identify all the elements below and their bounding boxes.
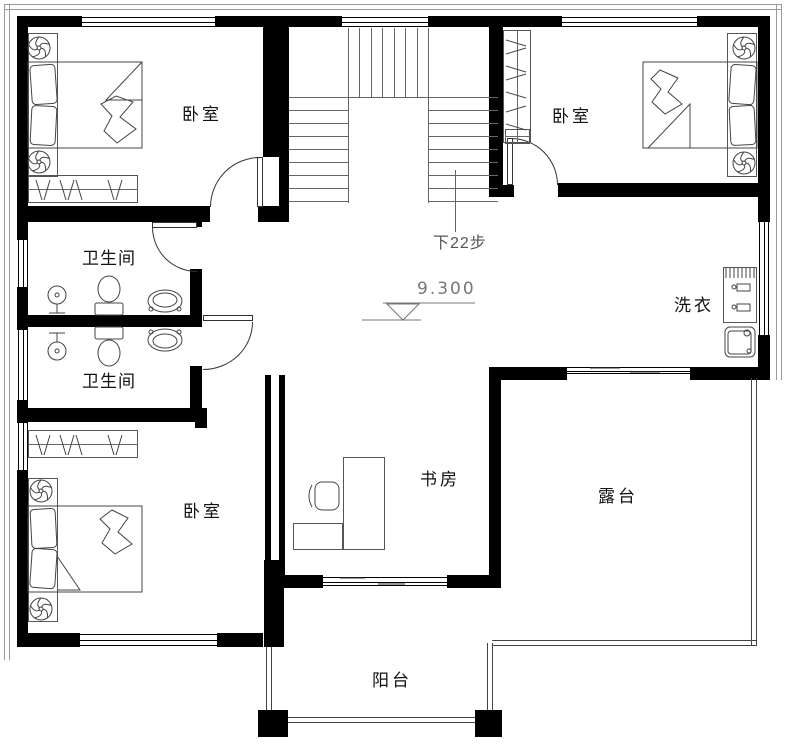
wardrobe-rail — [28, 189, 138, 190]
stair-tread — [428, 110, 498, 111]
stairs-annotation: 下22步 — [433, 236, 487, 252]
stair-tread — [289, 136, 348, 137]
stair-tread — [428, 201, 498, 202]
wall — [558, 183, 770, 197]
eave-line — [5, 4, 782, 5]
sliding-door — [323, 577, 447, 586]
stair-tread — [289, 162, 348, 163]
room-label-bathroom-lower: 卫生间 — [82, 373, 136, 390]
stair-tread — [289, 123, 348, 124]
balcony-railing — [266, 647, 267, 710]
stair-tread — [428, 149, 498, 150]
balcony-column — [258, 710, 288, 737]
wall — [195, 408, 207, 428]
wall — [190, 269, 202, 323]
stair-tread — [359, 28, 360, 97]
stair-tread — [428, 28, 429, 97]
window — [18, 240, 28, 287]
floor-plan: 卧室 卧室 卧室 卫生间 卫生间 洗衣 书房 露台 阳台 下22步 9.300 — [0, 0, 789, 755]
room-label-bedroom-top-left: 卧室 — [182, 106, 222, 123]
stair-tread — [289, 201, 348, 202]
terrace-railing — [756, 378, 757, 645]
terrace-railing — [492, 645, 757, 646]
balcony-railing — [271, 647, 272, 710]
room-label-bedroom-top-right: 卧室 — [552, 108, 592, 125]
wall — [489, 367, 567, 380]
wall — [758, 16, 770, 222]
headboard-strip — [727, 33, 757, 177]
stair-tread — [289, 188, 348, 189]
room-label-terrace: 露台 — [598, 488, 638, 505]
wardrobe-rail — [517, 30, 518, 143]
wall — [17, 206, 210, 222]
partition-wall — [279, 375, 285, 575]
window — [562, 17, 697, 27]
stair-tread — [428, 162, 498, 163]
window — [18, 330, 28, 400]
eave-line — [9, 4, 10, 660]
stair-tread — [371, 28, 372, 97]
stair-wall — [279, 16, 289, 215]
stairs-leader-line — [455, 170, 456, 232]
window — [759, 222, 769, 335]
door-swing-arc — [511, 138, 558, 185]
balcony-column — [475, 710, 502, 737]
eave-line — [4, 4, 5, 660]
window — [82, 17, 215, 27]
desk — [343, 457, 385, 550]
stair-tread — [289, 97, 498, 98]
stair-tread — [417, 28, 418, 97]
room-label-study: 书房 — [420, 471, 460, 488]
window — [80, 634, 217, 646]
headboard-strip — [28, 33, 58, 177]
balcony-railing — [288, 722, 475, 723]
terrace-railing — [492, 640, 757, 641]
wall — [17, 315, 202, 327]
room-label-bedroom-bottom-left: 卧室 — [183, 503, 223, 520]
balcony-railing — [492, 643, 493, 710]
stair-tread — [382, 28, 383, 97]
stair-tread — [394, 28, 395, 97]
room-label-laundry: 洗衣 — [674, 297, 714, 314]
elevation-value: 9.300 — [417, 281, 476, 298]
stair-tread — [289, 149, 348, 150]
wall — [489, 367, 501, 588]
stair-tread — [348, 28, 349, 97]
balcony-railing — [288, 717, 475, 718]
door-leaf — [203, 315, 253, 321]
wall — [690, 367, 770, 380]
window — [18, 423, 28, 470]
wall — [17, 408, 207, 422]
stair-tread — [428, 175, 498, 176]
eave-line — [5, 9, 782, 10]
wardrobe-shelf-line — [505, 136, 530, 137]
room-label-balcony: 阳台 — [372, 672, 412, 689]
door-swing-arc — [210, 157, 260, 207]
wardrobe-rail — [28, 444, 138, 445]
stair-tread — [289, 175, 348, 176]
door-swing-arc — [152, 227, 197, 272]
headboard-strip — [28, 478, 58, 622]
stair-tread — [405, 28, 406, 97]
laundry-counter — [723, 267, 757, 323]
elevation-marker — [362, 303, 475, 320]
door-swing-arc — [203, 322, 253, 370]
stair-well-edge — [348, 97, 349, 203]
stair-tread — [428, 188, 498, 189]
terrace-railing — [751, 378, 752, 645]
balcony-railing — [487, 643, 488, 710]
wall — [17, 633, 80, 647]
wall — [258, 206, 289, 222]
wall — [496, 185, 514, 197]
partition-wall — [265, 375, 271, 565]
window — [342, 17, 428, 27]
stair-tread — [428, 123, 498, 124]
room-label-bathroom-upper: 卫生间 — [82, 250, 136, 267]
eave-line — [776, 4, 777, 380]
wall — [217, 633, 263, 647]
desk-return — [293, 523, 343, 550]
stair-tread — [428, 136, 498, 137]
wall — [17, 470, 28, 647]
sliding-door — [567, 367, 690, 374]
stair-tread — [289, 110, 348, 111]
eave-line — [781, 4, 782, 380]
wall — [190, 366, 202, 408]
wall — [280, 575, 323, 588]
stair-wall — [489, 16, 503, 197]
